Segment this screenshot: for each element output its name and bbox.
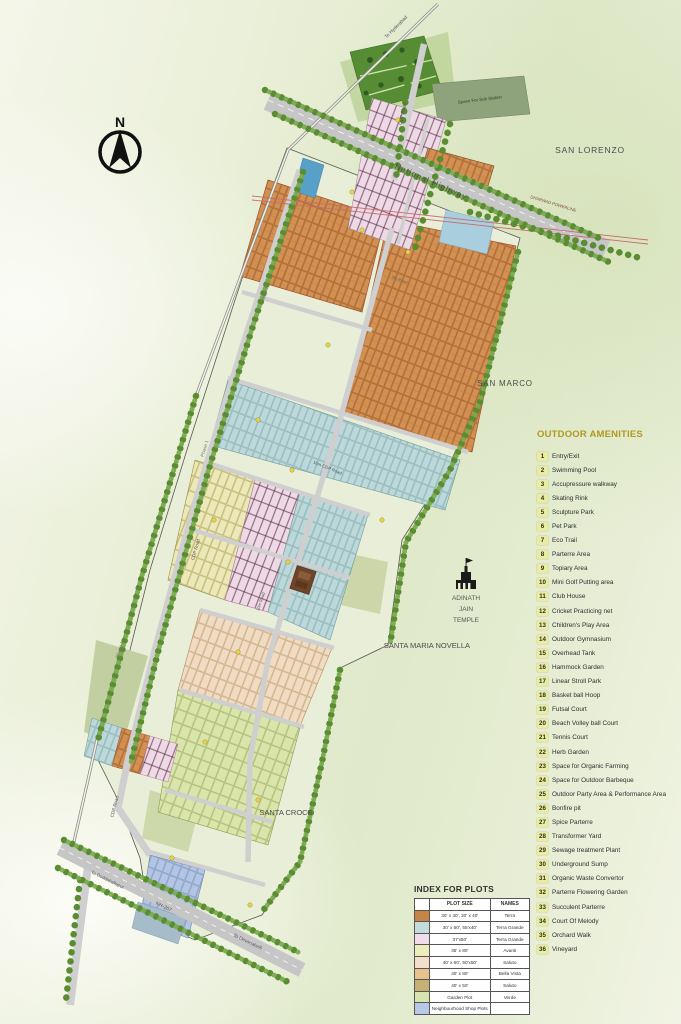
amenity-number: 26 [537, 804, 548, 813]
amenity-item: 4 Skating Rink [537, 491, 679, 505]
amenity-label: Orchard Walk [552, 932, 591, 939]
amenity-item: 6 Pet Park [537, 519, 679, 533]
amenity-label: Succulent Parterre [552, 904, 605, 911]
amenity-number: 17 [537, 677, 548, 686]
plot-size-cell: Neighbourhood Shop Plots [429, 1003, 490, 1015]
amenity-label: Swimming Pool [552, 467, 596, 474]
plot-name-cell: Verde [490, 991, 529, 1003]
plot-size-cell: 35' x 80' [429, 945, 490, 957]
amenity-number: 1 [537, 452, 548, 461]
plot-name-cell: Terra Grande [490, 933, 529, 945]
masterplan-page: N To Hyderabad CDP Road Space For Sub St… [0, 0, 681, 1024]
plot-size-cell: 40' x 60', 50'x50' [429, 956, 490, 968]
amenity-item: 18 Basket ball Hoop [537, 689, 679, 703]
amenity-item: 3 Accupressure walkway [537, 477, 679, 491]
amenity-number: 25 [537, 790, 548, 799]
amenity-number: 16 [537, 663, 548, 672]
plot-index-panel: INDEX FOR PLOTS PLOT SIZE NAMES 30' x 40… [414, 884, 530, 1015]
plot-index-row: Garden Plot Verde [415, 991, 530, 1003]
amenity-label: Beach Volley ball Court [552, 720, 618, 727]
amenity-number: 24 [537, 776, 548, 785]
plot-size-cell: Garden Plot [429, 991, 490, 1003]
amenity-item: 10 Mini Golf Putting area [537, 576, 679, 590]
amenity-label: Outdoor Party Area & Performance Area [552, 791, 666, 798]
amenity-label: Eco Trail [552, 537, 577, 544]
amenity-label: Pet Park [552, 523, 577, 530]
plot-name-cell [490, 1003, 529, 1015]
amenity-label: Club House [552, 593, 585, 600]
outdoor-amenities-legend: OUTDOOR AMENITIES 1 Entry/Exit 2 Swimmin… [537, 429, 679, 956]
amenity-item: 29 Sewage treatment Plant [537, 844, 679, 858]
amenity-item: 23 Space for Organic Farming [537, 759, 679, 773]
amenity-number: 3 [537, 480, 548, 489]
plot-index-row: 37'x50' Terra Grande [415, 933, 530, 945]
amenity-item: 36 Vineyard [537, 942, 679, 956]
amenity-item: 24 Space for Outdoor Barbeque [537, 773, 679, 787]
amenity-label: Topiary Area [552, 565, 588, 572]
amenity-number: 7 [537, 536, 548, 545]
amenity-item: 17 Linear Stroll Park [537, 675, 679, 689]
amenity-item: 12 Cricket Practicing net [537, 604, 679, 618]
amenity-number: 10 [537, 578, 548, 587]
label-santa-croce: SANTA CROCE [259, 808, 312, 817]
amenity-number: 28 [537, 832, 548, 841]
amenities-title: OUTDOOR AMENITIES [537, 429, 679, 440]
plot-index-row: 30' x 50', 55'x40' Terra Grande [415, 922, 530, 934]
amenity-number: 11 [537, 592, 548, 601]
label-san-lorenzo: SAN LORENZO [555, 145, 625, 155]
amenity-number: 36 [537, 945, 548, 954]
plot-color-swatch [415, 922, 430, 934]
compass-north-label: N [115, 114, 125, 130]
amenity-label: Accupressure walkway [552, 481, 617, 488]
amenity-number: 29 [537, 846, 548, 855]
plot-color-swatch [415, 933, 430, 945]
plot-size-cell: 40' x 80' [429, 968, 490, 980]
plot-name-cell: Saluto [490, 956, 529, 968]
amenity-number: 8 [537, 550, 548, 559]
plot-index-row: 40' x 60', 50'x50' Saluto [415, 956, 530, 968]
amenity-number: 19 [537, 705, 548, 714]
amenity-label: Sewage treatment Plant [552, 847, 620, 854]
amenity-number: 12 [537, 607, 548, 616]
amenity-item: 27 Spice Parterre [537, 815, 679, 829]
amenity-label: Court Of Melody [552, 918, 599, 925]
plot-index-row: 30' x 40', 20' x 40' Terra [415, 910, 530, 922]
label-san-marco: SAN MARCO [477, 379, 533, 388]
amenity-label: Outdoor Gymnasium [552, 636, 611, 643]
amenity-number: 34 [537, 917, 548, 926]
plot-name-cell: Bella Vista [490, 968, 529, 980]
amenity-number: 13 [537, 621, 548, 630]
amenity-label: Herb Garden [552, 749, 589, 756]
amenity-item: 28 Transformer Yard [537, 830, 679, 844]
plot-name-cell: Terra [490, 910, 529, 922]
amenity-label: Futsal Court [552, 706, 587, 713]
plot-index-header-row: PLOT SIZE NAMES [415, 899, 530, 911]
amenity-item: 22 Herb Garden [537, 745, 679, 759]
amenity-number: 27 [537, 818, 548, 827]
amenity-item: 35 Orchard Walk [537, 928, 679, 942]
amenity-item: 2 Swimming Pool [537, 463, 679, 477]
amenity-item: 32 Parterre Flowering Garden [537, 886, 679, 900]
amenity-number: 31 [537, 874, 548, 883]
amenity-label: Transformer Yard [552, 833, 601, 840]
plot-color-swatch [415, 910, 430, 922]
amenity-label: Bonfire pit [552, 805, 581, 812]
amenity-item: 16 Hammock Garden [537, 660, 679, 674]
plot-index-row: 40' x 50' Saluto [415, 980, 530, 992]
amenity-number: 23 [537, 762, 548, 771]
amenity-label: Organic Waste Convertor [552, 875, 624, 882]
plot-index-row: 35' x 80' Avanti [415, 945, 530, 957]
amenity-label: Children's Play Area [552, 622, 609, 629]
amenity-item: 30 Underground Sump [537, 858, 679, 872]
amenity-number: 6 [537, 522, 548, 531]
plot-color-swatch [415, 980, 430, 992]
plot-index-row: Neighbourhood Shop Plots [415, 1003, 530, 1015]
compass-needle [109, 130, 131, 168]
amenity-label: Skating Rink [552, 495, 588, 502]
amenity-item: 5 Sculpture Park [537, 505, 679, 519]
amenity-item: 19 Futsal Court [537, 703, 679, 717]
amenity-item: 33 Succulent Parterre [537, 900, 679, 914]
amenity-item: 15 Overhead Tank [537, 646, 679, 660]
amenity-item: 9 Topiary Area [537, 562, 679, 576]
label-temple-3: TEMPLE [453, 617, 480, 624]
amenity-number: 4 [537, 494, 548, 503]
amenity-label: Cricket Practicing net [552, 608, 612, 615]
amenity-number: 20 [537, 719, 548, 728]
amenity-number: 5 [537, 508, 548, 517]
amenity-label: Space for Organic Farming [552, 763, 629, 770]
plot-name-cell: Saluto [490, 980, 529, 992]
amenity-label: Overhead Tank [552, 650, 595, 657]
amenity-label: Entry/Exit [552, 453, 579, 460]
amenity-number: 15 [537, 649, 548, 658]
amenity-item: 14 Outdoor Gymnasium [537, 632, 679, 646]
temple-icon [456, 558, 476, 589]
amenity-label: Sculpture Park [552, 509, 594, 516]
amenity-number: 14 [537, 635, 548, 644]
plot-name-cell: Terra Grande [490, 922, 529, 934]
amenity-item: 11 Club House [537, 590, 679, 604]
amenity-label: Hammock Garden [552, 664, 604, 671]
plot-color-swatch [415, 1003, 430, 1015]
amenity-number: 32 [537, 888, 548, 897]
amenity-label: Space for Outdoor Barbeque [552, 777, 634, 784]
label-santa-maria-novella: SANTA MARIA NOVELLA [384, 641, 470, 650]
plot-color-swatch [415, 968, 430, 980]
amenity-label: Spice Parterre [552, 819, 593, 826]
amenity-number: 22 [537, 748, 548, 757]
amenity-number: 18 [537, 691, 548, 700]
amenity-number: 33 [537, 903, 548, 912]
plot-index-size-header: PLOT SIZE [429, 899, 490, 911]
amenity-item: 26 Bonfire pit [537, 801, 679, 815]
plot-size-cell: 37'x50' [429, 933, 490, 945]
amenity-item: 8 Parterre Area [537, 548, 679, 562]
amenity-item: 1 Entry/Exit [537, 449, 679, 463]
amenity-number: 30 [537, 860, 548, 869]
amenities-list: 1 Entry/Exit 2 Swimming Pool 3 Accupress… [537, 449, 679, 956]
plot-color-swatch [415, 956, 430, 968]
plot-size-cell: 30' x 50', 55'x40' [429, 922, 490, 934]
plot-index-table: PLOT SIZE NAMES 30' x 40', 20' x 40' Ter… [414, 898, 530, 1015]
amenity-label: Underground Sump [552, 861, 608, 868]
amenity-item: 13 Children's Play Area [537, 618, 679, 632]
plot-size-cell: 40' x 50' [429, 980, 490, 992]
amenity-item: 21 Tennis Court [537, 731, 679, 745]
amenity-item: 25 Outdoor Party Area & Performance Area [537, 787, 679, 801]
amenity-number: 21 [537, 733, 548, 742]
amenity-number: 35 [537, 931, 548, 940]
plot-index-names-header: NAMES [490, 899, 529, 911]
plot-index-swatch-header [415, 899, 430, 911]
amenity-number: 9 [537, 564, 548, 573]
amenity-label: Vineyard [552, 946, 577, 953]
amenity-item: 34 Court Of Melody [537, 914, 679, 928]
amenity-label: Parterre Area [552, 551, 590, 558]
amenity-label: Linear Stroll Park [552, 678, 601, 685]
amenity-label: Mini Golf Putting area [552, 579, 613, 586]
amenity-label: Tennis Court [552, 734, 588, 741]
amenity-label: Parterre Flowering Garden [552, 889, 628, 896]
amenity-item: 31 Organic Waste Convertor [537, 872, 679, 886]
plot-index-row: 40' x 80' Bella Vista [415, 968, 530, 980]
plot-color-swatch [415, 991, 430, 1003]
compass: N [100, 114, 140, 172]
plot-name-cell: Avanti [490, 945, 529, 957]
plot-index-title: INDEX FOR PLOTS [414, 884, 530, 894]
amenity-label: Basket ball Hoop [552, 692, 600, 699]
plot-size-cell: 30' x 40', 20' x 40' [429, 910, 490, 922]
plot-color-swatch [415, 945, 430, 957]
plot-index-body: 30' x 40', 20' x 40' Terra 30' x 50', 55… [415, 910, 530, 1014]
amenity-item: 7 Eco Trail [537, 534, 679, 548]
amenity-number: 2 [537, 466, 548, 475]
amenity-item: 20 Beach Volley ball Court [537, 717, 679, 731]
label-temple-1: ADINATH [452, 595, 480, 602]
label-temple-2: JAIN [459, 606, 473, 613]
